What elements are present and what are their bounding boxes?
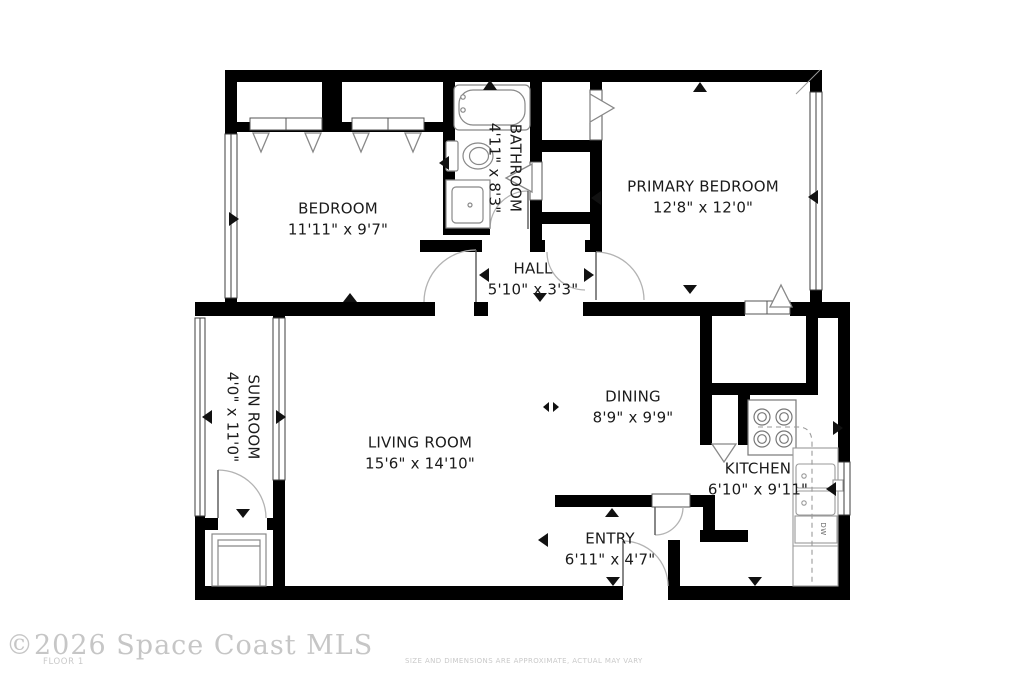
room-dims: 12'8" x 12'0" <box>627 197 779 218</box>
room-label-primary-bedroom: PRIMARY BEDROOM 12'8" x 12'0" <box>627 176 779 217</box>
room-label-living-room: LIVING ROOM 15'6" x 14'10" <box>365 432 475 473</box>
room-name: LIVING ROOM <box>365 432 475 453</box>
room-label-bathroom: BATHROOM 4'11" x 8'3" <box>484 123 525 214</box>
room-label-entry: ENTRY 6'11" x 4'7" <box>565 528 656 569</box>
dishwasher-icon <box>795 516 837 543</box>
room-name: HALL <box>488 258 579 279</box>
room-name: BEDROOM <box>288 198 388 219</box>
room-name: BATHROOM <box>505 123 526 214</box>
room-name: KITCHEN <box>708 458 808 479</box>
room-name: DINING <box>593 386 674 407</box>
water-heater-icon <box>212 534 266 586</box>
room-dims: 4'11" x 8'3" <box>484 123 505 214</box>
room-label-bedroom: BEDROOM 11'11" x 9'7" <box>288 198 388 239</box>
room-dims: 6'10" x 9'11" <box>708 479 808 500</box>
room-dims: 5'10" x 3'3" <box>488 279 579 300</box>
room-dims: 6'11" x 4'7" <box>565 549 656 570</box>
room-name: PRIMARY BEDROOM <box>627 176 779 197</box>
dimensions-disclaimer: SIZE AND DIMENSIONS ARE APPROXIMATE, ACT… <box>405 657 643 665</box>
floor-plan-drawing <box>0 0 1024 683</box>
room-dims: 11'11" x 9'7" <box>288 219 388 240</box>
room-label-sun-room: SUN ROOM 4'0" x 11'0" <box>222 372 263 463</box>
room-label-kitchen: KITCHEN 6'10" x 9'11" <box>708 458 808 499</box>
room-dims: 15'6" x 14'10" <box>365 453 475 474</box>
room-dims: 4'0" x 11'0" <box>222 372 243 463</box>
room-label-dining: DINING 8'9" x 9'9" <box>593 386 674 427</box>
floor-number-label: FLOOR 1 <box>43 657 84 667</box>
dishwasher-label: DW <box>819 522 827 535</box>
floor-plan-page: BEDROOM 11'11" x 9'7" BATHROOM 4'11" x 8… <box>0 0 1024 683</box>
room-name: SUN ROOM <box>243 372 264 463</box>
room-dims: 8'9" x 9'9" <box>593 407 674 428</box>
room-label-hall: HALL 5'10" x 3'3" <box>488 258 579 299</box>
room-name: ENTRY <box>565 528 656 549</box>
